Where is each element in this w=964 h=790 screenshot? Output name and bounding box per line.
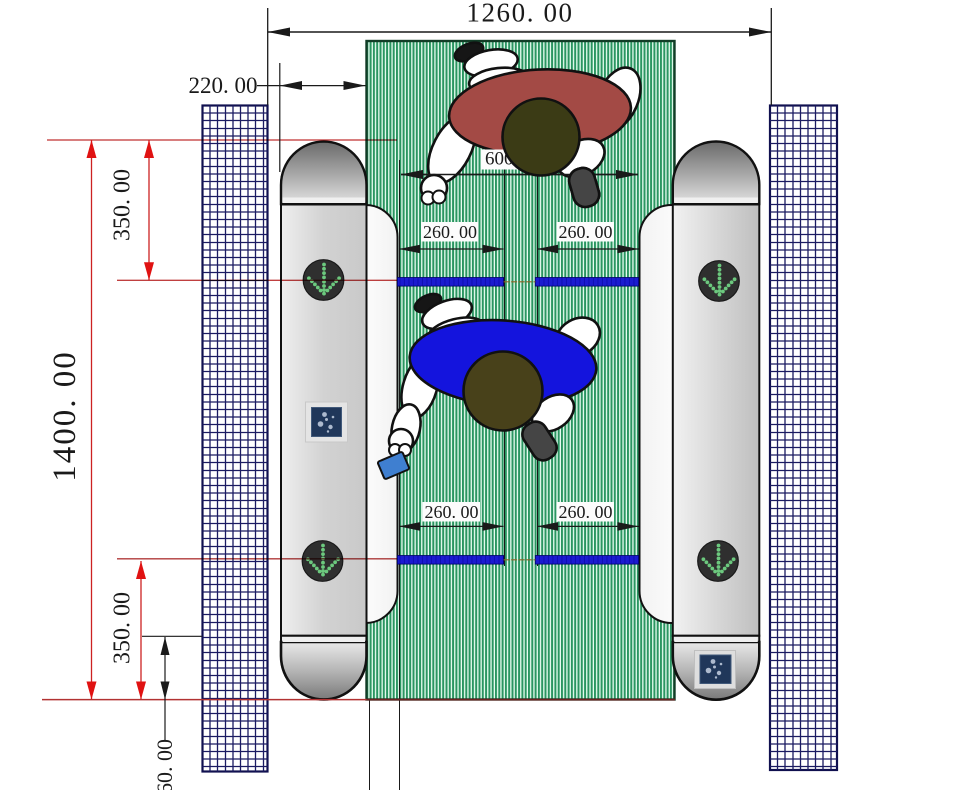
svg-text:260. 00: 260. 00 (559, 222, 613, 242)
svg-text:160. 00: 160. 00 (152, 739, 177, 790)
svg-text:1260. 00: 1260. 00 (466, 0, 573, 28)
svg-text:260. 00: 260. 00 (423, 222, 477, 242)
svg-text:220. 00: 220. 00 (189, 73, 258, 98)
svg-text:1400. 00: 1400. 00 (47, 350, 83, 482)
svg-text:350. 00: 350. 00 (110, 169, 136, 241)
svg-text:260. 00: 260. 00 (425, 502, 479, 522)
svg-text:260. 00: 260. 00 (559, 502, 613, 522)
svg-text:350. 00: 350. 00 (110, 592, 136, 664)
